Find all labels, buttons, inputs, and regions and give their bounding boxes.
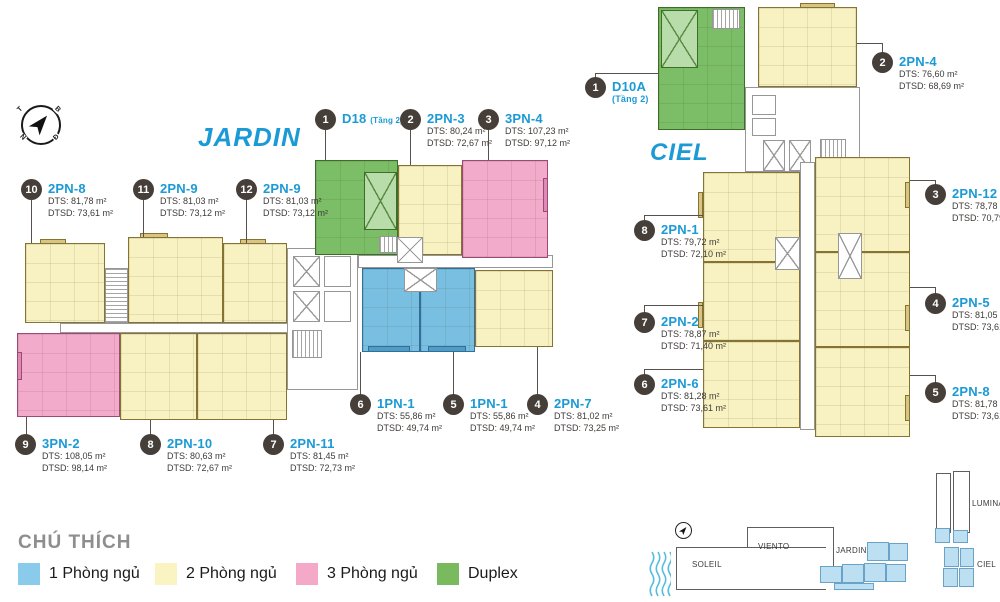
connector-line — [644, 215, 703, 216]
unit-dts: DTS: 81,78 m² — [952, 399, 1000, 411]
balcony-strip — [905, 395, 910, 421]
unit-name: 2PN-5 — [952, 295, 1000, 310]
minimap-label-viento: VIENTO — [758, 542, 789, 551]
unit-number-badge: 1 — [585, 77, 606, 98]
unit-name: 1PN-1 — [377, 396, 442, 411]
legend-swatch-2pn — [155, 563, 177, 585]
connector-line — [910, 180, 936, 181]
minimap-jardin-block — [886, 564, 906, 582]
d10a-void — [661, 10, 698, 68]
jardin-elevator-3 — [293, 291, 320, 322]
connector-line — [360, 352, 361, 395]
ciel-title: CIEL — [650, 139, 709, 167]
unit-number-badge: 12 — [236, 179, 257, 200]
ciel-elevator-1 — [763, 140, 785, 171]
unit-number-badge: 7 — [634, 312, 655, 333]
jardin-stairwell-core — [292, 330, 322, 358]
balcony-strip — [17, 352, 22, 380]
minimap-lumina-foot — [935, 528, 950, 543]
unit-dtsd: DTSD: 73,12 m² — [160, 208, 225, 220]
unit-dts: DTS: 108,05 m² — [42, 451, 107, 463]
balcony-strip — [240, 239, 266, 244]
balcony-strip — [800, 3, 835, 8]
unit-dtsd: DTSD: 71,40 m² — [661, 341, 726, 353]
minimap-jardin-block — [889, 543, 908, 561]
unit-label-jardin-4: 4 2PN-7 DTS: 81,02 m² DTSD: 73,25 m² — [527, 394, 619, 434]
unit-label-jardin-1: 1 D18 (Tầng 2) — [315, 109, 403, 130]
connector-line — [26, 417, 27, 435]
unit-dtsd: DTSD: 49,74 m² — [470, 423, 535, 435]
compass-icon: T B N Đ — [18, 102, 62, 146]
unit-label-jardin-11: 11 2PN-9 DTS: 81,03 m² DTSD: 73,12 m² — [133, 179, 225, 219]
unit-label-ciel-5: 5 2PN-8 DTS: 81,78 m² DTSD: 73,61 m² — [925, 382, 1000, 422]
minimap-jardin-block — [842, 564, 864, 583]
unit-dtsd: DTSD: 73,61 m² — [952, 411, 1000, 423]
unit-dtsd: DTSD: 68,69 m² — [899, 81, 964, 93]
unit-dtsd: DTSD: 73,61 m² — [952, 322, 1000, 334]
unit-dts: DTS: 81,45 m² — [290, 451, 355, 463]
unit-name: 2PN-1 — [661, 222, 726, 237]
connector-line — [595, 73, 658, 74]
jardin-corridor — [60, 323, 288, 333]
unit-number-badge: 3 — [925, 184, 946, 205]
minimap-jardin-block — [834, 583, 874, 590]
unit-dtsd: DTSD: 73,12 m² — [263, 208, 328, 220]
jardin-elevator-2 — [324, 256, 351, 287]
unit-dtsd: DTSD: 49,74 m² — [377, 423, 442, 435]
floorplan-brochure: T B N Đ JARDIN CIEL — [0, 0, 1000, 602]
minimap-building-lumina-b — [953, 471, 970, 533]
plan-unit-2pn9-a — [128, 237, 223, 323]
minimap-label-soleil: SOLEIL — [692, 560, 722, 569]
minimap-compass-icon — [675, 522, 692, 539]
unit-dts: DTS: 81,28 m² — [661, 391, 726, 403]
unit-label-ciel-3: 3 2PN-12 DTS: 78,78 m² DTSD: 70,79 m² — [925, 184, 1000, 224]
minimap-ciel-block — [944, 547, 959, 567]
unit-name: 2PN-6 — [661, 376, 726, 391]
unit-dts: DTS: 76,60 m² — [899, 69, 964, 81]
unit-label-jardin-3: 3 3PN-4 DTS: 107,23 m² DTSD: 97,12 m² — [478, 109, 570, 149]
unit-label-jardin-8: 8 2PN-10 DTS: 80,63 m² DTSD: 72,67 m² — [140, 434, 232, 474]
minimap-label-lumina: LUMINA — [972, 499, 1000, 508]
plan-unit-2pn8-ciel — [815, 347, 910, 437]
d18-stairs — [379, 236, 397, 253]
unit-number-badge: 10 — [21, 179, 42, 200]
legend-label: 3 Phòng ngủ — [327, 565, 418, 583]
unit-dts: DTS: 79,72 m² — [661, 237, 726, 249]
unit-label-ciel-6: 6 2PN-6 DTS: 81,28 m² DTSD: 73,61 m² — [634, 374, 726, 414]
unit-label-ciel-8: 8 2PN-1 DTS: 79,72 m² DTSD: 72,10 m² — [634, 220, 726, 260]
unit-dtsd: DTSD: 72,10 m² — [661, 249, 726, 261]
unit-label-jardin-12: 12 2PN-9 DTS: 81,03 m² DTSD: 73,12 m² — [236, 179, 328, 219]
balcony-strip — [543, 178, 548, 212]
unit-dts: DTS: 81,78 m² — [48, 196, 113, 208]
minimap-jardin-block — [867, 542, 889, 561]
unit-name: D10A(Tầng 2) — [612, 79, 649, 104]
legend-swatch-duplex — [437, 563, 459, 585]
minimap-jardin-block — [820, 566, 842, 583]
legend-label: Duplex — [468, 565, 518, 583]
unit-dts: DTS: 81,05 m² — [952, 310, 1000, 322]
unit-dtsd: DTSD: 73,61 m² — [661, 403, 726, 415]
unit-name: 2PN-7 — [554, 396, 619, 411]
legend-item-1pn: 1 Phòng ngủ — [18, 563, 140, 585]
unit-name: 2PN-9 — [263, 181, 328, 196]
plan-unit-2pn9-b — [223, 243, 287, 323]
plan-unit-2pn7 — [475, 270, 553, 347]
unit-number-badge: 9 — [15, 434, 36, 455]
unit-dtsd: DTSD: 73,61 m² — [48, 208, 113, 220]
connector-line — [910, 375, 936, 376]
unit-number-badge: 2 — [400, 109, 421, 130]
unit-dts: DTS: 107,23 m² — [505, 126, 570, 138]
legend-title: CHÚ THÍCH — [18, 532, 132, 554]
balcony-strip — [40, 239, 66, 244]
connector-line — [453, 352, 454, 395]
plan-unit-2pn5 — [815, 252, 910, 347]
unit-name: 2PN-12 — [952, 186, 1000, 201]
unit-number-badge: 5 — [925, 382, 946, 403]
ciel-gap-shaft — [800, 162, 815, 430]
unit-number-badge: 6 — [350, 394, 371, 415]
unit-label-jardin-5: 5 1PN-1 DTS: 55,86 m² DTSD: 49,74 m² — [443, 394, 535, 434]
unit-number-badge: 1 — [315, 109, 336, 130]
unit-label-jardin-6: 6 1PN-1 DTS: 55,86 m² DTSD: 49,74 m² — [350, 394, 442, 434]
unit-name: 2PN-8 — [48, 181, 113, 196]
plan-unit-3pn4 — [462, 160, 548, 258]
unit-number-badge: 4 — [527, 394, 548, 415]
minimap-ciel-block — [943, 568, 958, 587]
unit-floor-note: (Tầng 2) — [612, 94, 649, 104]
ciel-lightwell-2 — [838, 233, 862, 279]
minimap-label-jardin: JARDIN — [836, 546, 867, 555]
connector-line — [150, 420, 151, 435]
connector-line — [644, 305, 703, 306]
unit-name: 3PN-2 — [42, 436, 107, 451]
unit-dts: DTS: 55,86 m² — [377, 411, 442, 423]
minimap-jardin-block — [864, 563, 886, 582]
unit-number-badge: 8 — [634, 220, 655, 241]
unit-name: D18 (Tầng 2) — [342, 111, 403, 126]
unit-label-jardin-9: 9 3PN-2 DTS: 108,05 m² DTSD: 98,14 m² — [15, 434, 107, 474]
unit-number-badge: 3 — [478, 109, 499, 130]
connector-line — [644, 369, 703, 370]
unit-number-badge: 8 — [140, 434, 161, 455]
unit-dts: DTS: 81,02 m² — [554, 411, 619, 423]
unit-number-badge: 4 — [925, 293, 946, 314]
balcony-strip — [368, 346, 410, 352]
unit-dtsd: DTSD: 97,12 m² — [505, 138, 570, 150]
d10a-stairs — [712, 9, 740, 29]
ciel-lobby-room-2 — [752, 118, 776, 136]
minimap-ciel-block — [959, 568, 974, 587]
unit-name: 2PN-9 — [160, 181, 225, 196]
plan-unit-2pn10 — [120, 333, 197, 420]
unit-label-jardin-10: 10 2PN-8 DTS: 81,78 m² DTSD: 73,61 m² — [21, 179, 113, 219]
legend-item-2pn: 2 Phòng ngủ — [155, 563, 277, 585]
balcony-strip — [140, 233, 168, 238]
legend-label: 2 Phòng ngủ — [186, 565, 277, 583]
plan-unit-3pn2 — [17, 333, 120, 417]
unit-name: 1PN-1 — [470, 396, 535, 411]
connector-line — [273, 420, 274, 435]
connector-line — [857, 43, 882, 44]
ciel-lobby-room-1 — [752, 95, 776, 115]
plan-unit-2pn8 — [25, 243, 105, 323]
balcony-strip — [428, 346, 466, 352]
jardin-lightwell-2 — [404, 268, 437, 292]
connector-line — [325, 130, 326, 160]
ciel-lightwell-1 — [775, 237, 800, 270]
unit-name: 2PN-11 — [290, 436, 355, 451]
legend-item-duplex: Duplex — [437, 563, 518, 585]
unit-number-badge: 2 — [872, 52, 893, 73]
unit-dts: DTS: 81,03 m² — [160, 196, 225, 208]
legend-item-3pn: 3 Phòng ngủ — [296, 563, 418, 585]
plan-unit-2pn12 — [815, 157, 910, 252]
unit-dtsd: DTSD: 98,14 m² — [42, 463, 107, 475]
plan-unit-2pn4 — [758, 7, 857, 87]
jardin-lightwell-1 — [397, 237, 423, 263]
unit-name: 2PN-10 — [167, 436, 232, 451]
unit-name: 2PN-4 — [899, 54, 964, 69]
d18-void — [364, 172, 397, 230]
jardin-stairwell-west — [105, 268, 128, 323]
unit-name: 3PN-4 — [505, 111, 570, 126]
connector-line — [537, 347, 538, 395]
connector-line — [910, 287, 936, 288]
unit-dts: DTS: 78,87 m² — [661, 329, 726, 341]
unit-number-badge: 5 — [443, 394, 464, 415]
unit-floor-note: (Tầng 2) — [370, 116, 403, 125]
minimap-building-lumina-a — [936, 473, 951, 533]
unit-dts: DTS: 81,03 m² — [263, 196, 328, 208]
balcony-strip — [905, 305, 910, 331]
unit-dts: DTS: 78,78 m² — [952, 201, 1000, 213]
unit-name: 2PN-2 — [661, 314, 726, 329]
unit-name: 2PN-8 — [952, 384, 1000, 399]
balcony-strip — [905, 182, 910, 208]
unit-dtsd: DTSD: 73,25 m² — [554, 423, 619, 435]
jardin-title: JARDIN — [198, 122, 301, 153]
compass-arrow-icon — [28, 112, 52, 136]
unit-number-badge: 7 — [263, 434, 284, 455]
unit-label-jardin-7: 7 2PN-11 DTS: 81,45 m² DTSD: 72,73 m² — [263, 434, 355, 474]
unit-number-badge: 6 — [634, 374, 655, 395]
unit-dtsd: DTSD: 72,73 m² — [290, 463, 355, 475]
unit-label-ciel-1: 1 D10A(Tầng 2) — [585, 77, 649, 104]
unit-dtsd: DTSD: 70,79 m² — [952, 213, 1000, 225]
water-waves-icon — [649, 551, 671, 597]
unit-label-ciel-7: 7 2PN-2 DTS: 78,87 m² DTSD: 71,40 m² — [634, 312, 726, 352]
minimap-label-ciel: CIEL — [977, 560, 996, 569]
unit-label-ciel-2: 2 2PN-4 DTS: 76,60 m² DTSD: 68,69 m² — [872, 52, 964, 92]
minimap-lumina-foot — [953, 530, 968, 543]
legend-swatch-3pn — [296, 563, 318, 585]
unit-dts: DTS: 55,86 m² — [470, 411, 535, 423]
unit-dtsd: DTSD: 72,67 m² — [167, 463, 232, 475]
compass-letter-west: T — [15, 105, 24, 114]
minimap-ciel-block — [960, 548, 974, 567]
unit-dts: DTS: 80,63 m² — [167, 451, 232, 463]
legend-label: 1 Phòng ngủ — [49, 565, 140, 583]
unit-label-ciel-4: 4 2PN-5 DTS: 81,05 m² DTSD: 73,61 m² — [925, 293, 1000, 333]
legend-swatch-1pn — [18, 563, 40, 585]
plan-unit-2pn11 — [197, 333, 287, 420]
jardin-elevator-1 — [293, 256, 320, 287]
jardin-elevator-4 — [324, 291, 351, 322]
unit-number-badge: 11 — [133, 179, 154, 200]
